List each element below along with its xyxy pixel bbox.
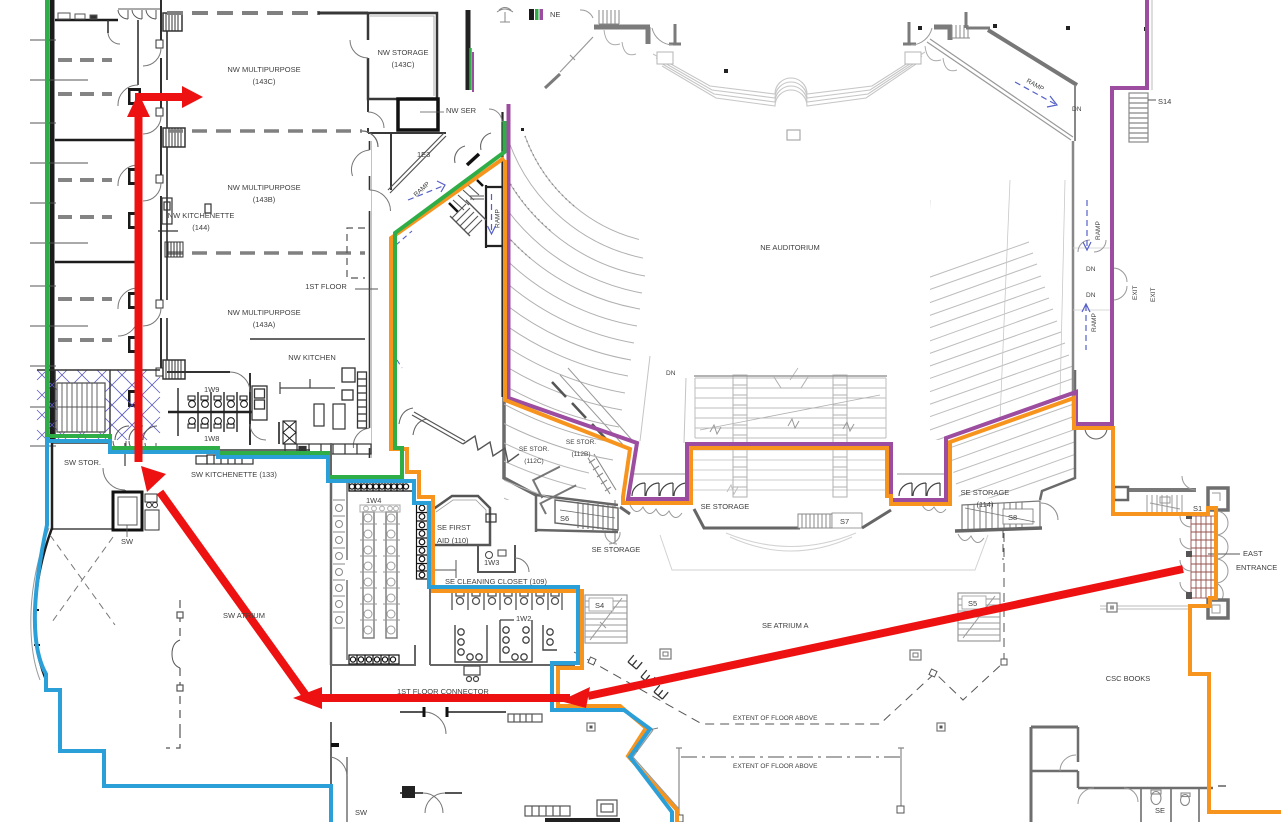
svg-text:1W2: 1W2 — [516, 614, 531, 623]
svg-text:1ST FLOOR CONNECTOR: 1ST FLOOR CONNECTOR — [397, 687, 489, 696]
svg-text:S6: S6 — [560, 514, 569, 523]
svg-text:(143B): (143B) — [253, 195, 276, 204]
svg-text:SW: SW — [355, 808, 368, 817]
svg-text:NW KITCHEN: NW KITCHEN — [288, 353, 336, 362]
svg-text:NW STORAGE: NW STORAGE — [377, 48, 428, 57]
svg-text:NW SER: NW SER — [446, 106, 477, 115]
svg-text:S1: S1 — [1193, 504, 1202, 513]
svg-text:1E3: 1E3 — [417, 150, 430, 159]
svg-text:1W8: 1W8 — [204, 434, 219, 443]
svg-text:SE STOR.: SE STOR. — [566, 439, 596, 446]
svg-text:NW MULTIPURPOSE: NW MULTIPURPOSE — [227, 308, 300, 317]
svg-text:(114): (114) — [977, 500, 994, 509]
svg-text:DN: DN — [666, 370, 676, 377]
svg-text:S8: S8 — [1008, 513, 1017, 522]
svg-text:AID (110): AID (110) — [437, 536, 469, 545]
svg-text:1ST FLOOR: 1ST FLOOR — [305, 282, 347, 291]
svg-text:CSC BOOKS: CSC BOOKS — [1106, 674, 1151, 683]
svg-text:DN: DN — [1086, 266, 1096, 273]
svg-text:DN: DN — [1072, 106, 1082, 113]
svg-text:SE CLEANING CLOSET (109): SE CLEANING CLOSET (109) — [445, 577, 547, 586]
svg-text:RAMP: RAMP — [495, 209, 502, 228]
svg-text:EXTENT OF FLOOR ABOVE: EXTENT OF FLOOR ABOVE — [733, 763, 818, 770]
svg-text:1W3: 1W3 — [484, 558, 499, 567]
svg-text:NE AUDITORIUM: NE AUDITORIUM — [760, 243, 819, 252]
svg-text:(144): (144) — [192, 223, 210, 232]
svg-text:(112C): (112C) — [524, 458, 543, 465]
svg-text:(143A): (143A) — [253, 320, 276, 329]
svg-text:SW ATRIUM: SW ATRIUM — [223, 611, 265, 620]
svg-text:NW KITCHENETTE: NW KITCHENETTE — [168, 211, 235, 220]
svg-text:SE STORAGE: SE STORAGE — [592, 545, 641, 554]
svg-text:(143C): (143C) — [253, 77, 276, 86]
svg-text:EXIT: EXIT — [1150, 288, 1157, 302]
svg-text:S4: S4 — [595, 601, 604, 610]
svg-text:ENTRANCE: ENTRANCE — [1236, 563, 1277, 572]
svg-text:1W4: 1W4 — [366, 496, 381, 505]
svg-text:SW: SW — [121, 537, 134, 546]
svg-text:(143C): (143C) — [392, 60, 415, 69]
svg-text:SE ATRIUM A: SE ATRIUM A — [762, 621, 809, 630]
svg-text:SW STOR.: SW STOR. — [64, 458, 101, 467]
svg-text:RAMP: RAMP — [1095, 221, 1102, 240]
svg-text:SW KITCHENETTE (133): SW KITCHENETTE (133) — [191, 470, 277, 479]
svg-text:S14: S14 — [1158, 97, 1171, 106]
svg-text:NE: NE — [550, 10, 560, 19]
svg-text:S7: S7 — [840, 517, 849, 526]
svg-text:SE STORAGE: SE STORAGE — [961, 488, 1010, 497]
svg-text:EXTENT OF FLOOR ABOVE: EXTENT OF FLOOR ABOVE — [733, 715, 818, 722]
svg-text:SE STORAGE: SE STORAGE — [701, 502, 750, 511]
svg-text:EXIT: EXIT — [1132, 286, 1139, 300]
svg-text:1W9: 1W9 — [204, 385, 219, 394]
svg-text:SE FIRST: SE FIRST — [437, 523, 471, 532]
svg-text:NW MULTIPURPOSE: NW MULTIPURPOSE — [227, 183, 300, 192]
svg-text:DN: DN — [1086, 292, 1096, 299]
svg-text:(112B): (112B) — [571, 451, 590, 458]
svg-text:EAST: EAST — [1243, 549, 1263, 558]
svg-text:RAMP: RAMP — [1091, 313, 1098, 332]
svg-text:SE STOR.: SE STOR. — [519, 446, 549, 453]
svg-text:SE: SE — [1155, 806, 1165, 815]
svg-text:S5: S5 — [968, 599, 977, 608]
svg-text:NW MULTIPURPOSE: NW MULTIPURPOSE — [227, 65, 300, 74]
